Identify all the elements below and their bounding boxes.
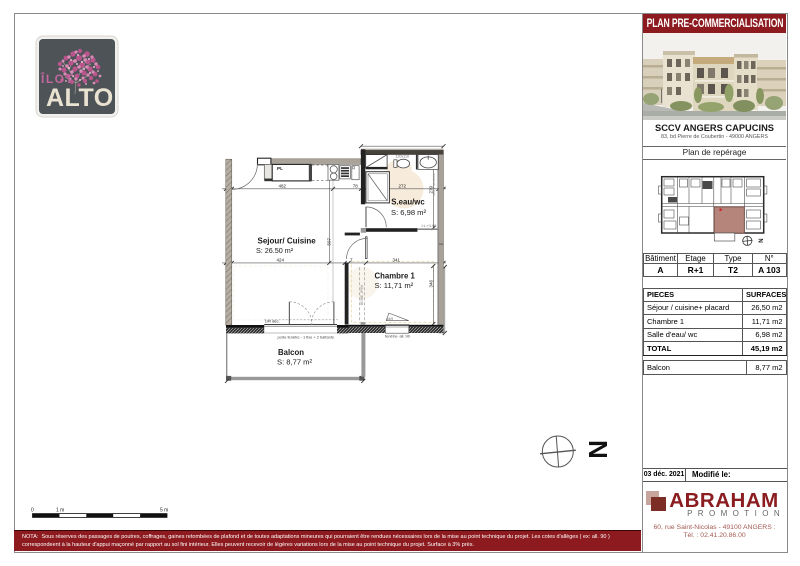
svg-text:S: 11,71 m²: S: 11,71 m² xyxy=(375,281,414,290)
svg-text:0: 0 xyxy=(31,508,34,514)
svg-text:346: 346 xyxy=(429,279,434,287)
svg-text:porte fenêtre - 1 fixe + 2 bat: porte fenêtre - 1 fixe + 2 battants xyxy=(278,334,334,339)
svg-text:N: N xyxy=(583,440,613,459)
svg-text:S.eau/wc: S.eau/wc xyxy=(391,197,425,206)
svg-text:S: 26.50 m²: S: 26.50 m² xyxy=(256,246,294,255)
svg-text:BD/BE 1P9M: BD/BE 1P9M xyxy=(360,285,364,305)
svg-text:Sejour/ Cuisine: Sejour/ Cuisine xyxy=(258,237,317,246)
svg-text:Balcon: Balcon xyxy=(278,348,304,357)
svg-text:S: 8,77 m²: S: 8,77 m² xyxy=(277,357,312,366)
svg-text:341: 341 xyxy=(393,258,401,263)
svg-text:597: 597 xyxy=(327,237,332,245)
svg-text:7: 7 xyxy=(350,258,353,263)
svg-text:64/9: 64/9 xyxy=(387,317,394,321)
svg-text:5 m: 5 m xyxy=(160,508,168,514)
svg-text:fenêtre- all. 90: fenêtre- all. 90 xyxy=(385,334,411,339)
svg-text:482: 482 xyxy=(279,184,287,189)
svg-text:seche serviette: seche serviette xyxy=(432,173,436,196)
svg-text:1 m: 1 m xyxy=(56,508,64,514)
svg-text:PL: PL xyxy=(277,166,283,171)
svg-text:78: 78 xyxy=(353,184,359,189)
svg-text:424: 424 xyxy=(277,258,285,263)
svg-text:120x110: 120x110 xyxy=(396,155,410,159)
svg-text:Chambre 1: Chambre 1 xyxy=(375,271,416,280)
svg-text:I.L.+1.95: I.L.+1.95 xyxy=(422,224,437,228)
svg-text:1/R déc.: 1/R déc. xyxy=(265,318,280,323)
svg-text:272: 272 xyxy=(399,184,407,189)
svg-text:S: 6,98 m²: S: 6,98 m² xyxy=(391,208,426,217)
